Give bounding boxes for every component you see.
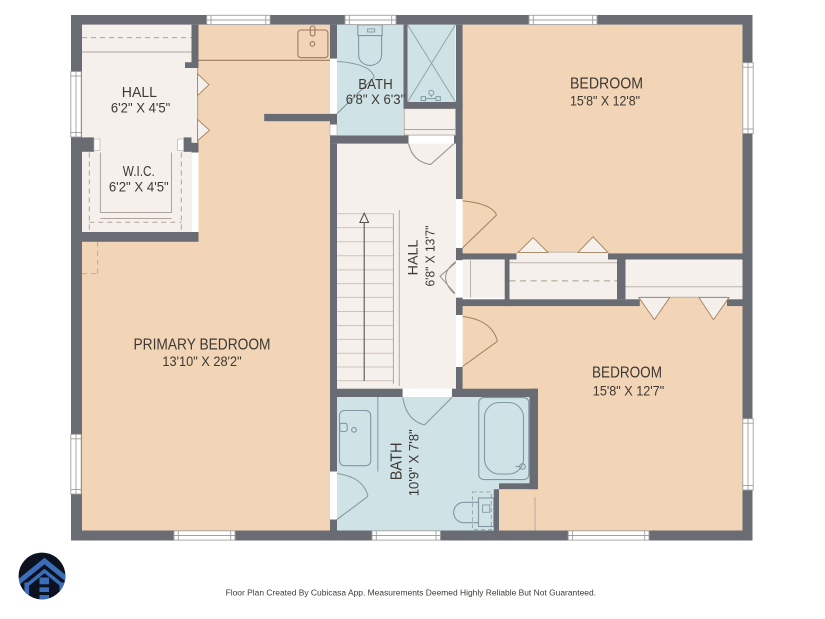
svg-text:PRIMARY BEDROOM: PRIMARY BEDROOM (134, 337, 271, 354)
svg-text:10'9" X 7'8": 10'9" X 7'8" (406, 429, 421, 496)
svg-text:6'8" X 6'3": 6'8" X 6'3" (346, 92, 406, 107)
svg-text:6'2" X 4'5": 6'2" X 4'5" (109, 180, 169, 195)
svg-text:W.I.C.: W.I.C. (123, 164, 155, 180)
svg-text:6'2" X 4'5": 6'2" X 4'5" (111, 101, 171, 116)
svg-text:HALL: HALL (122, 85, 157, 101)
svg-text:BATH: BATH (389, 443, 406, 481)
svg-text:13'10" X 28'2": 13'10" X 28'2" (162, 354, 241, 370)
svg-text:Floor Plan Created By Cubicasa: Floor Plan Created By Cubicasa App. Meas… (226, 588, 596, 598)
svg-text:6'8" X 13'7": 6'8" X 13'7" (423, 225, 438, 286)
svg-text:HALL: HALL (406, 239, 421, 275)
svg-text:BEDROOM: BEDROOM (570, 75, 643, 92)
svg-text:BEDROOM: BEDROOM (592, 365, 662, 382)
svg-text:BATH: BATH (358, 77, 393, 93)
svg-text:15'8" X 12'8": 15'8" X 12'8" (570, 94, 640, 110)
svg-text:15'8" X 12'7": 15'8" X 12'7" (593, 384, 664, 400)
